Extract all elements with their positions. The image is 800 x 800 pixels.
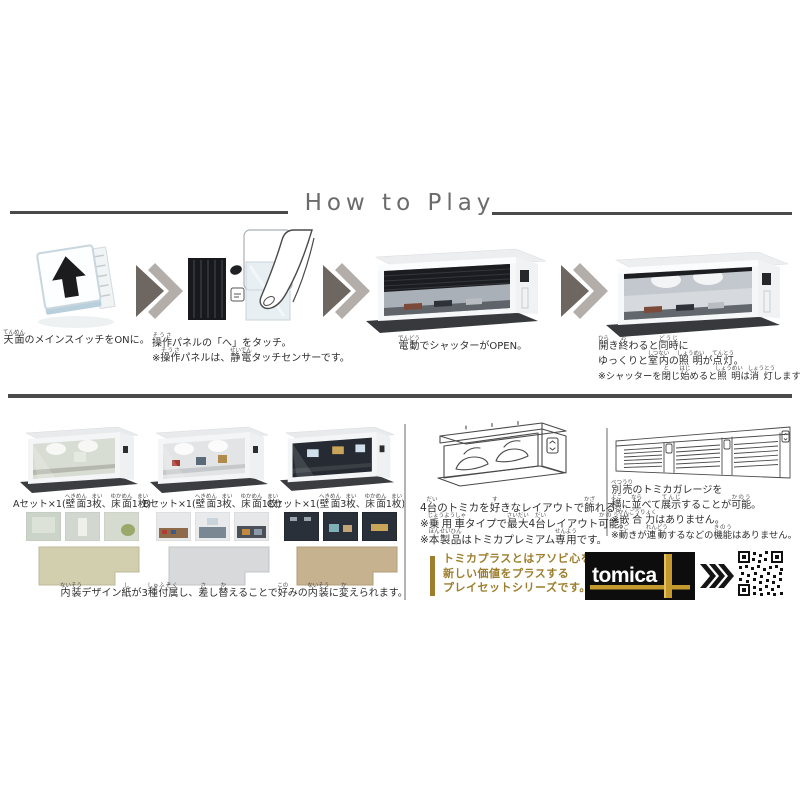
set-a-photo <box>18 422 142 496</box>
caption-line: ※操作そうさパネルは、静電せいでんタッチセンサーです。 <box>152 348 347 363</box>
triple-chevron-icon <box>700 562 734 590</box>
display-caption: 別売べつうりのトミカガレージを 横よこに並ならべて展示てんじすることが可能かのう… <box>611 480 800 540</box>
set-b-floor-panel <box>168 546 270 586</box>
wall-panel-thumb <box>65 512 100 541</box>
wall-panel-thumb <box>234 512 269 541</box>
next-step-arrow-icon <box>556 258 610 324</box>
wall-panel-thumb <box>104 512 139 541</box>
wall-panel-thumb <box>284 512 319 541</box>
step1-caption: 天面てんめんのメインスイッチをONに。 <box>3 330 163 345</box>
layout-caption: 4台だいのトミカを好すきなレイアウトで飾かざれる。 ※乗用車じょうようしゃタイプ… <box>420 497 606 545</box>
wall-panel-thumb <box>26 512 61 541</box>
caption-line: ゆっくりと室内しつないの照明しょうめいが点灯てんとう。 <box>598 351 800 366</box>
step4-caption: 開ひらき終おわると同時どうじに ゆっくりと室内しつないの照明しょうめいが点灯てん… <box>598 336 800 381</box>
tomica-logo-text: tomica <box>592 564 658 587</box>
set-c-floor-panel <box>296 546 398 586</box>
set-a-label: Aセット×1(壁面へきめん3枚まい、床面ゆかめん1枚まい) <box>8 494 156 509</box>
caption-line: ※シャッターを閉とじ始はじめると照明しょうめいは消灯しょうとうします。 <box>598 366 800 381</box>
set-a-wall-panels <box>26 512 139 541</box>
set-b-wall-panels <box>156 512 269 541</box>
wall-panel-thumb <box>362 512 397 541</box>
step2-caption: 操作そうさパネルの「へ」をタッチ。 ※操作そうさパネルは、静電せいでんタッチセン… <box>152 333 347 363</box>
next-step-arrow-icon <box>131 258 185 324</box>
main-switch-photo <box>22 236 130 332</box>
layout-line-drawing <box>430 416 578 498</box>
set-c-wall-panels <box>284 512 397 541</box>
vertical-divider <box>404 424 406 600</box>
caption-line: 操作そうさパネルの「へ」をタッチ。 <box>152 333 347 348</box>
wall-panel-thumb <box>195 512 230 541</box>
tomica-logo: tomica <box>585 552 695 600</box>
set-c-label: Cセット×1(壁面へきめん3枚まい、床面ゆかめん1枚まい) <box>266 494 406 509</box>
garage-shutter-open-photo <box>364 242 554 339</box>
set-b-photo <box>148 422 272 496</box>
set-a-floor-panel <box>38 546 140 586</box>
header-rule-left <box>10 211 288 214</box>
gold-accent-bar <box>430 556 435 596</box>
set-c-photo <box>278 422 398 494</box>
caption-line: 天面てんめんのメインスイッチをONに。 <box>3 330 163 345</box>
set-b-label: Bセット×1(壁面へきめん3枚まい、床面ゆかめん1枚まい) <box>138 494 286 509</box>
caption-line: 電動でんどうでシャッターがOPEN。 <box>398 336 558 351</box>
garage-lights-on-photo <box>604 244 796 344</box>
page-title: How to Play <box>300 190 500 216</box>
instruction-sheet: How to Play <box>0 0 800 800</box>
touch-panel-photo <box>184 228 316 336</box>
wall-panel-thumb <box>323 512 358 541</box>
wall-panel-thumb <box>156 512 191 541</box>
step3-caption: 電動でんどうでシャッターがOPEN。 <box>398 336 558 351</box>
side-by-side-line-drawing <box>614 424 796 486</box>
header-rule-right <box>492 212 792 215</box>
section-divider <box>8 394 792 398</box>
caption-line: 開ひらき終おわると同時どうじに <box>598 336 800 351</box>
sets-note: 内装ないそうデザイン紙しが3種しゅ付属ふぞくし、差さし替かえることで好このみの内… <box>60 583 405 598</box>
qr-code <box>737 550 784 597</box>
tomica-plus-blurb: トミカプラスとはアソビ心を持った 新しい価値をプラスする プレイセットシリーズで… <box>443 552 603 596</box>
